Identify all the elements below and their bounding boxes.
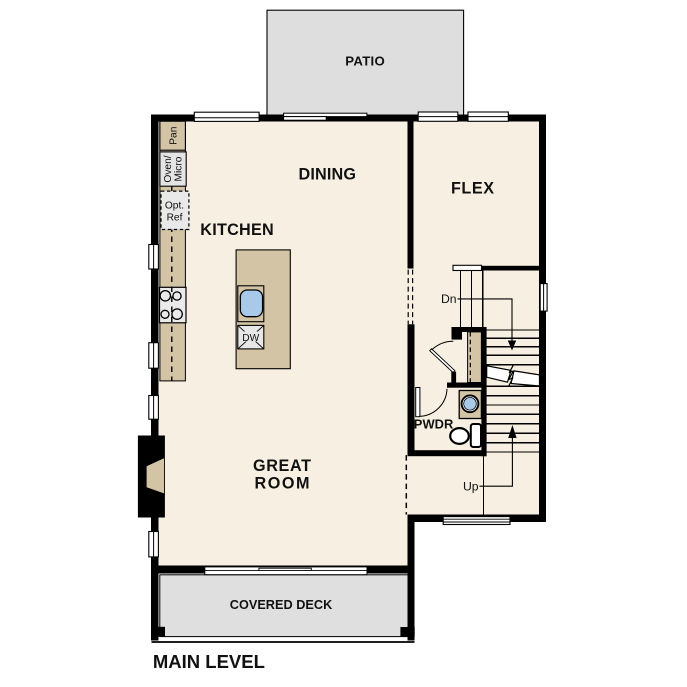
svg-text:Micro: Micro <box>173 156 184 181</box>
svg-text:PATIO: PATIO <box>345 54 385 69</box>
svg-text:Oven/: Oven/ <box>163 155 174 182</box>
svg-text:DW: DW <box>242 333 259 344</box>
svg-text:GREAT: GREAT <box>253 457 311 475</box>
svg-text:Ref: Ref <box>167 212 183 223</box>
svg-text:ROOM: ROOM <box>255 474 310 492</box>
svg-text:KITCHEN: KITCHEN <box>200 221 274 239</box>
svg-text:DINING: DINING <box>298 166 356 184</box>
svg-text:Dn: Dn <box>441 292 457 306</box>
svg-text:MAIN LEVEL: MAIN LEVEL <box>153 651 265 672</box>
svg-text:Pan: Pan <box>168 127 179 145</box>
svg-text:COVERED DECK: COVERED DECK <box>230 598 333 612</box>
svg-text:Up: Up <box>463 480 479 494</box>
svg-text:FLEX: FLEX <box>451 180 494 198</box>
svg-text:Opt.: Opt. <box>165 200 184 211</box>
svg-text:PWDR: PWDR <box>414 417 454 432</box>
